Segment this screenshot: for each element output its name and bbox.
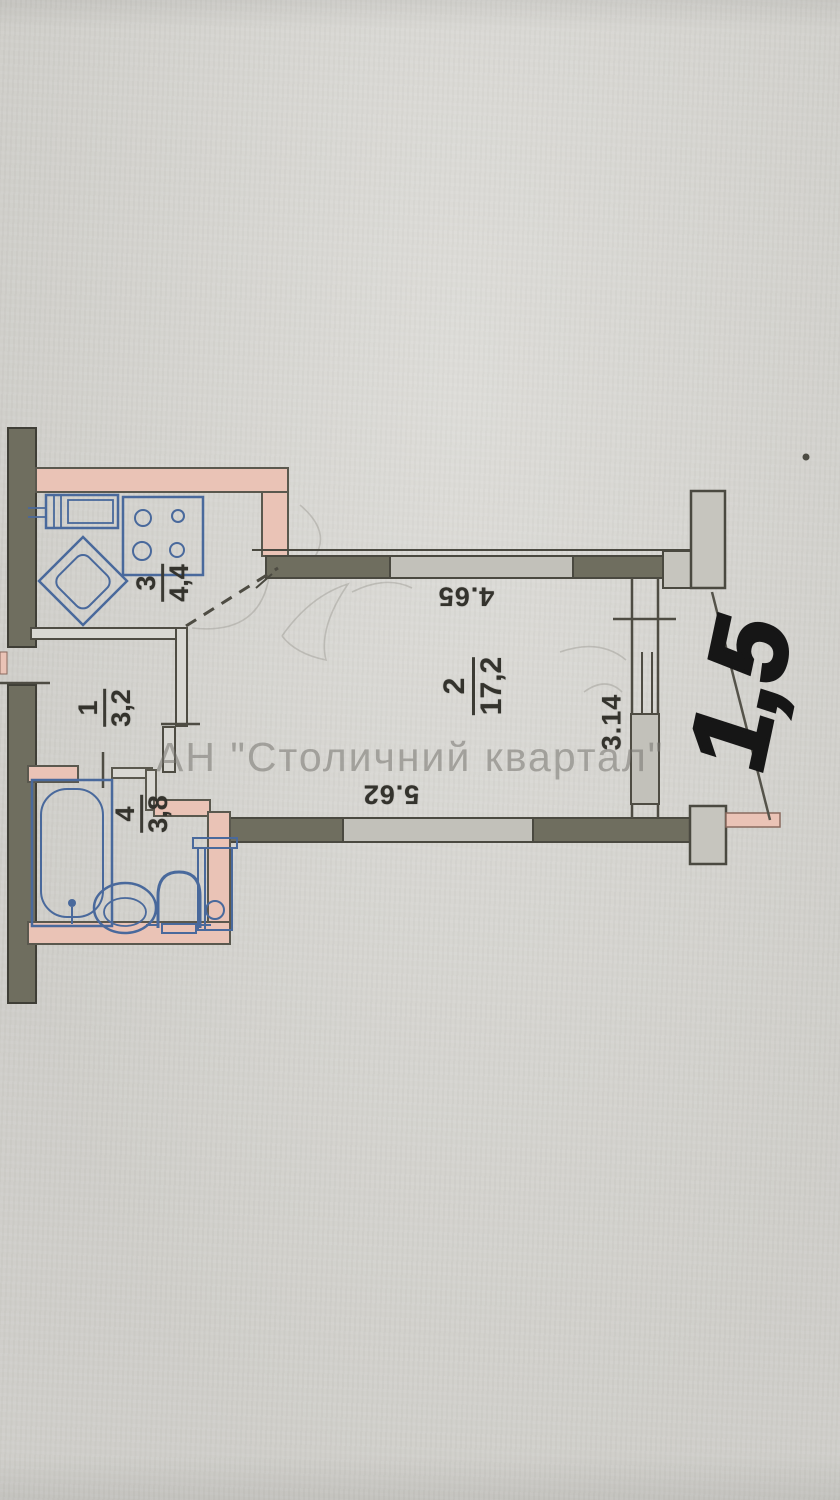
kitchen-walls [36, 468, 288, 556]
room-number: 4 [111, 806, 139, 821]
room-label-hall: 1 3,2 [74, 689, 136, 727]
kitchen-table-icon [39, 537, 127, 625]
open-doorway-dashed-line [186, 568, 278, 626]
room-area: 3,8 [145, 795, 173, 833]
room-label-bathroom: 4 3,8 [111, 795, 173, 833]
balcony-pillar-top [691, 491, 725, 588]
room-area: 17,2 [476, 657, 508, 715]
room-area: 4,4 [166, 564, 194, 602]
room-label-living-room: 2 17,2 [439, 657, 507, 715]
kitchen-counter-sink-icon [28, 495, 118, 528]
bathtub-icon [32, 780, 112, 926]
scanned-floor-plan-photo: 3 4,4 1 3,2 4 3,8 2 17,2 4.65 5.62 3.14 … [0, 0, 840, 1500]
pencil-sketch-marks [192, 505, 626, 692]
photo-speck [803, 454, 810, 461]
room-area: 3,2 [108, 689, 136, 727]
agency-watermark: АН "Столичний квартал" [156, 734, 664, 781]
balcony-salmon-edge [726, 813, 780, 827]
room2-bottom-wall [227, 818, 690, 842]
room-label-kitchen: 3 4,4 [132, 564, 194, 602]
dimension-top: 4.65 [438, 581, 495, 612]
room-number: 1 [74, 700, 102, 715]
room-number: 3 [132, 575, 160, 590]
balcony-pillar-bottom [690, 806, 726, 864]
entrance-door-mark [0, 652, 7, 674]
room-number: 2 [439, 678, 471, 695]
dimension-bottom: 5.62 [363, 779, 420, 810]
